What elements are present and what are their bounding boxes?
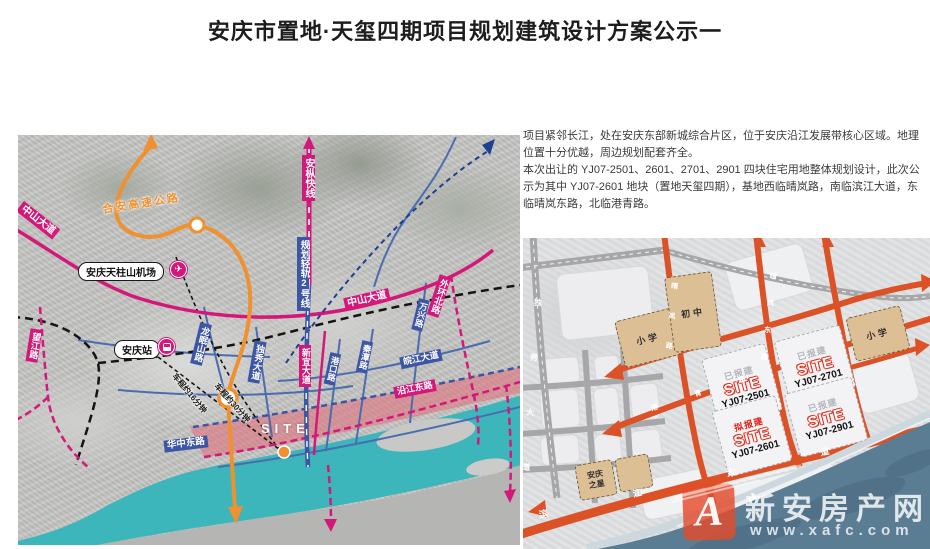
page-title: 安庆市置地·天玺四期项目规划建筑设计方案公示一 — [0, 14, 930, 46]
parcel-label: 初中 — [680, 304, 706, 320]
road-label-xinyi-ave: 新宜大道 — [299, 345, 311, 387]
parcel-label: 安庆之星 — [585, 469, 606, 491]
description-paragraph-2: 本次出让的 YJ07-2501、2601、2701、2901 四块住宅用地整体规… — [523, 162, 928, 213]
site-marker-dot — [278, 446, 290, 458]
station-label: 安庆站 — [114, 340, 160, 359]
announcement-page: 安庆市置地·天玺四期项目规划建筑设计方案公示一 项目紧邻长江，处在安庆东部新城综… — [0, 0, 930, 549]
site-word-overview: SITE — [261, 421, 310, 436]
description-paragraph-1: 项目紧邻长江，处在安庆东部新城综合片区，位于安庆沿江发展带核心区域。地理位置十分… — [523, 128, 928, 162]
airport-icon: ✈ — [170, 261, 187, 278]
watermark-url: www.xafc.com — [750, 522, 914, 539]
train-icon — [158, 338, 175, 355]
site-plan-map: 小学 初中 小学 已报建 SITE YJ07-2501 已报建 SITE YJ0… — [523, 238, 930, 549]
road-label-anzong-express: 安枞快线 — [302, 155, 315, 201]
airport-label: 安庆天柱山机场 — [78, 262, 164, 281]
city-map-layers — [18, 135, 520, 545]
road-label-rail-line2: 规划轻轨2号线 — [297, 237, 309, 311]
project-description: 项目紧邻长江，处在安庆东部新城综合片区，位于安庆沿江发展带核心区域。地理位置十分… — [523, 128, 928, 213]
xafc-logo-monogram: A — [694, 491, 723, 534]
parcel-label: 小学 — [635, 329, 661, 347]
parcel-label: 小学 — [865, 324, 891, 342]
navy-dashed-link — [286, 151, 488, 363]
city-overview-map: 中山大道 合安高速公路 安庆天柱山机场 ✈ 安枞快线 规划轻轨2号线 安庆站 望… — [18, 135, 520, 545]
